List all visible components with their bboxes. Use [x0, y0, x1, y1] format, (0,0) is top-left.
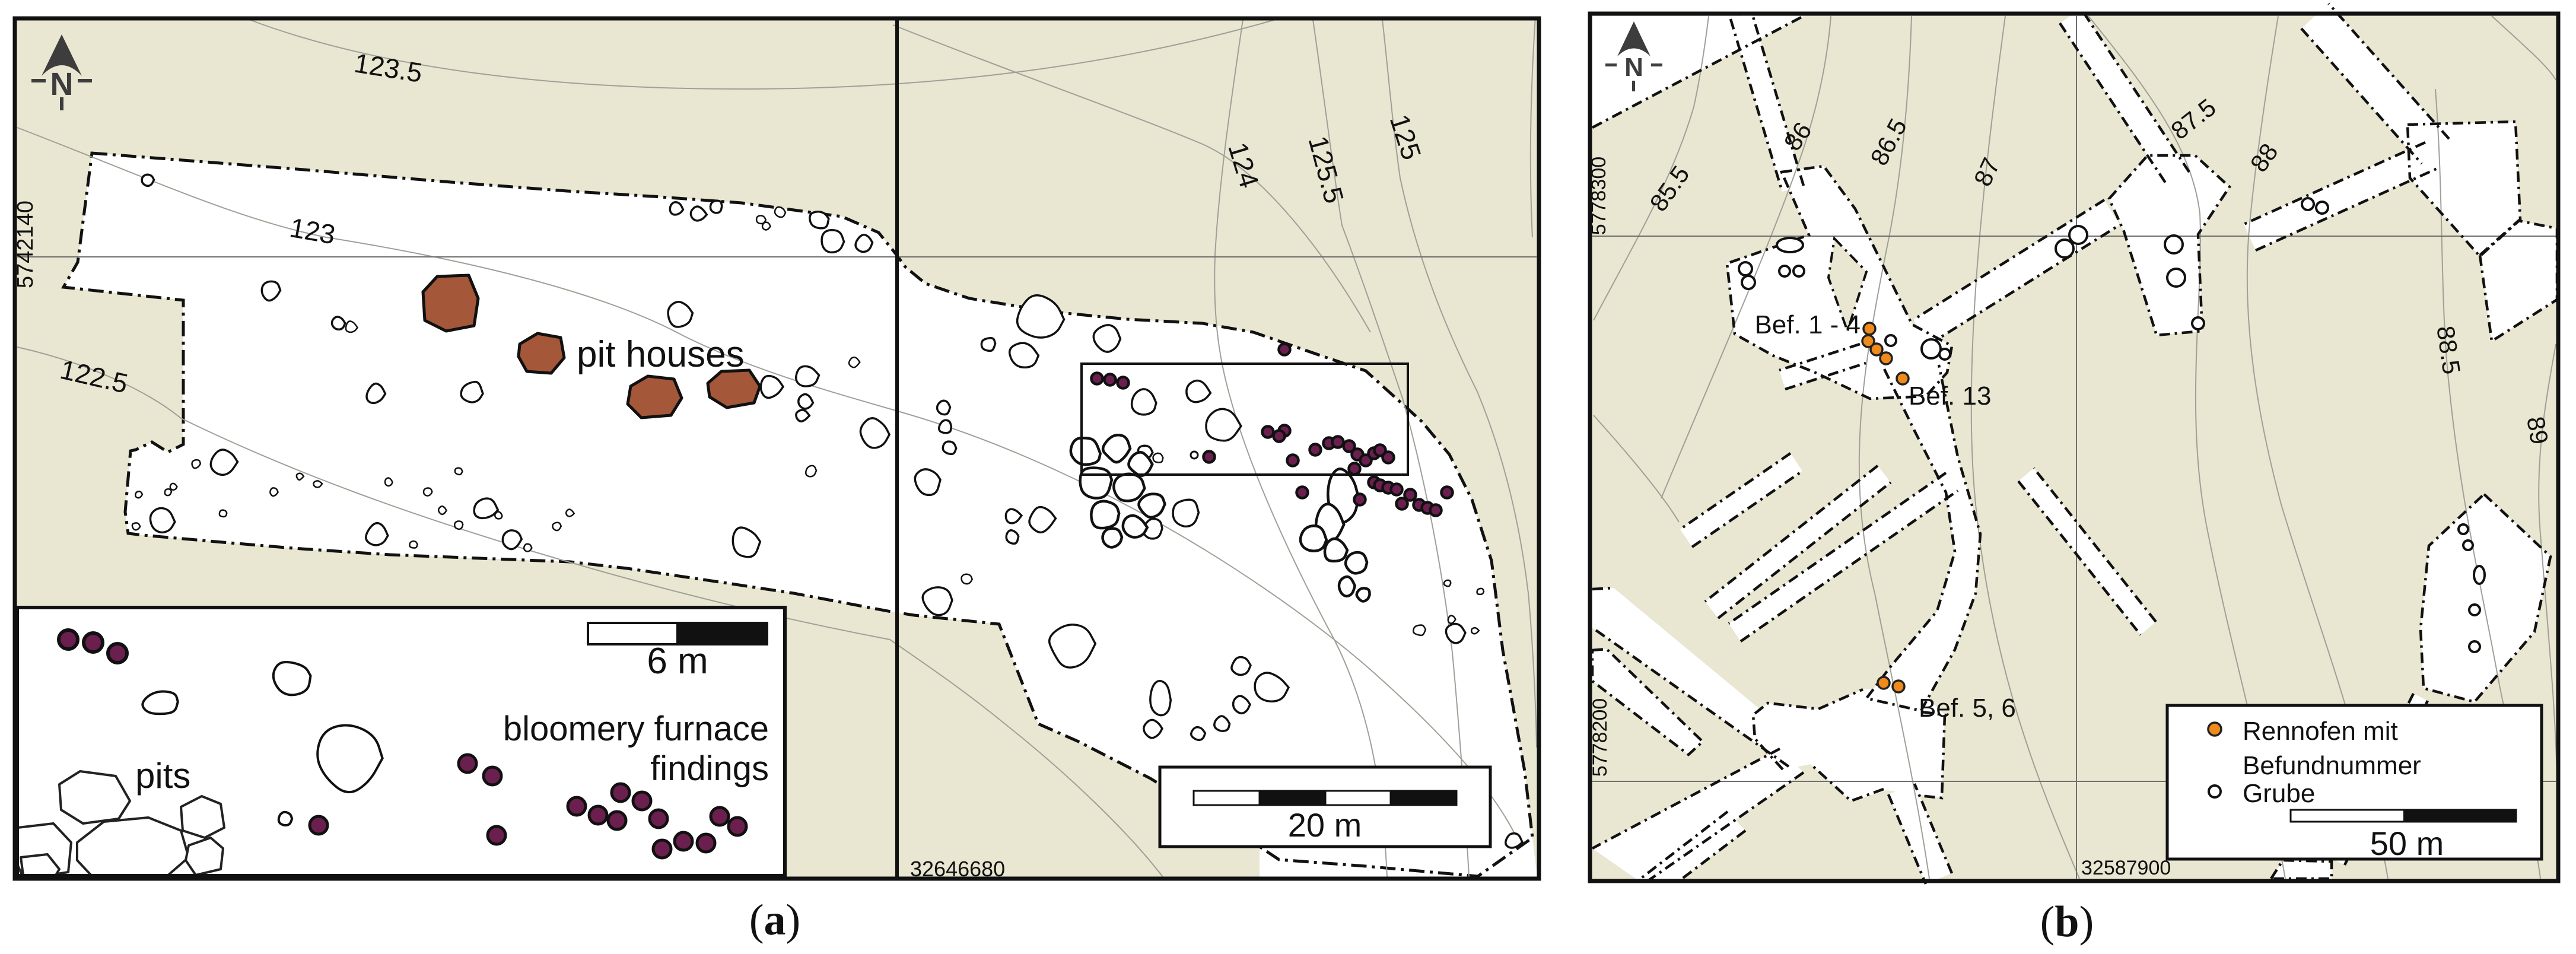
svg-text:32587900: 32587900 — [2081, 857, 2171, 879]
svg-text:89: 89 — [2521, 414, 2553, 446]
svg-text:Bef. 1 - 4: Bef. 1 - 4 — [1754, 310, 1861, 339]
svg-text:Rennofen mit: Rennofen mit — [2243, 717, 2398, 746]
svg-text:findings: findings — [650, 749, 769, 788]
svg-text:N: N — [50, 66, 74, 102]
svg-text:20 m: 20 m — [1288, 806, 1362, 844]
svg-text:Bef. 5, 6: Bef. 5, 6 — [1919, 694, 2016, 723]
svg-text:Befundnummer: Befundnummer — [2243, 751, 2421, 780]
svg-text:pits: pits — [135, 756, 190, 796]
svg-text:Bef. 13: Bef. 13 — [1909, 381, 1991, 411]
svg-text:pit houses: pit houses — [577, 334, 745, 375]
svg-text:bloomery furnace: bloomery furnace — [503, 710, 769, 748]
svg-text:6 m: 6 m — [647, 641, 708, 682]
svg-text:50 m: 50 m — [2370, 825, 2444, 862]
svg-text:Grube: Grube — [2243, 779, 2315, 808]
svg-text:(b): (b) — [2040, 898, 2094, 946]
svg-text:(a): (a) — [749, 896, 800, 945]
svg-text:5778200: 5778200 — [1589, 698, 1611, 777]
svg-text:N: N — [1624, 53, 1643, 82]
